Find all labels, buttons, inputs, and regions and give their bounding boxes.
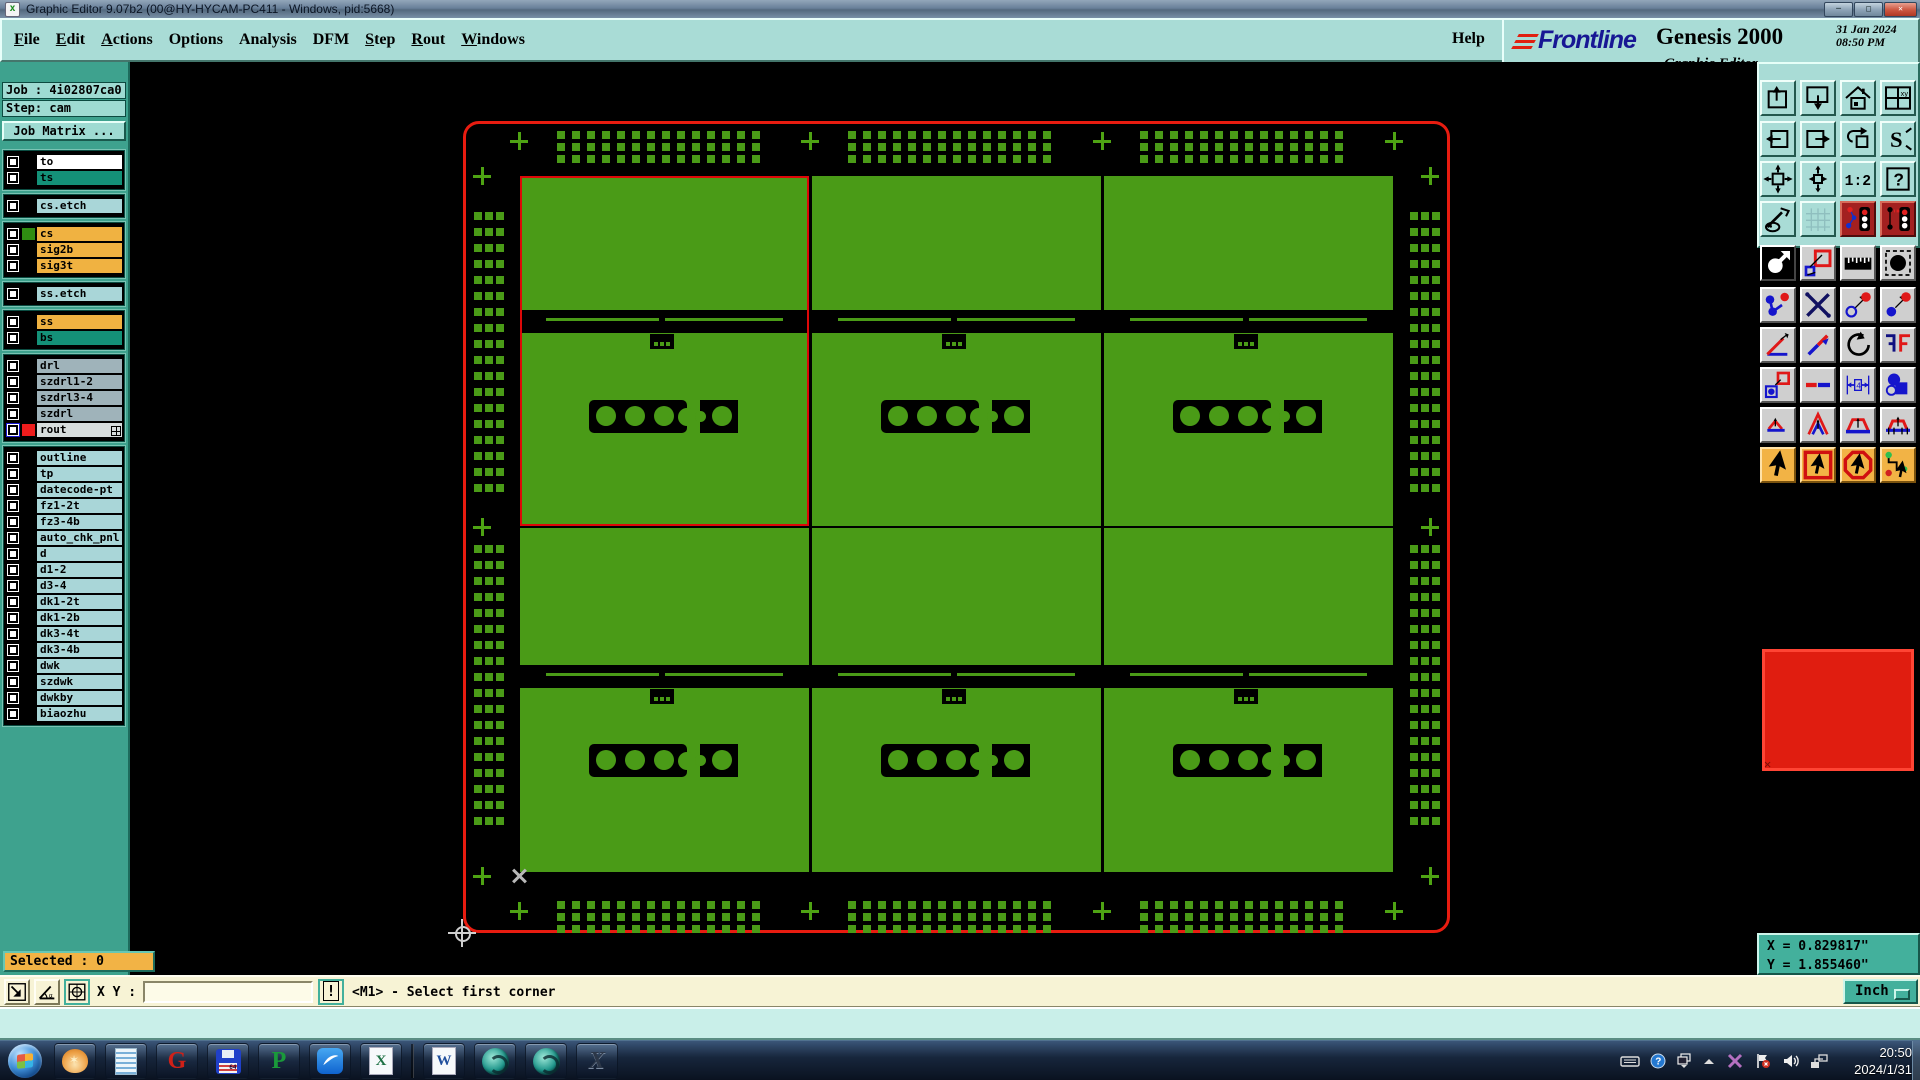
tool-s-step[interactable]: S <box>1880 121 1916 157</box>
fiducial-square <box>1245 925 1253 933</box>
panel-plus-mark <box>1093 902 1111 920</box>
connector-hole <box>1238 750 1258 770</box>
fiducial-square <box>1275 131 1283 139</box>
job-matrix-button[interactable]: Job Matrix ... <box>2 121 126 141</box>
fiducial-square <box>1421 753 1429 761</box>
fiducial-square <box>953 143 961 151</box>
cursor-coordinates: X = 0.829817" Y = 1.855460" <box>1757 933 1920 975</box>
fiducial-square <box>1170 143 1178 151</box>
fiducial-square <box>1421 452 1429 460</box>
tool-reshape[interactable] <box>1800 245 1836 281</box>
taskbar-app-camtek-2[interactable] <box>525 1043 567 1079</box>
grid-snap-icon <box>66 981 88 1003</box>
fiducial-square <box>474 212 482 220</box>
tool-scale-1-2[interactable]: 1:2 <box>1840 161 1876 197</box>
fiducial-square <box>1432 404 1440 412</box>
taskbar-app-excel[interactable]: X <box>360 1043 402 1079</box>
layer-checkbox[interactable] <box>6 659 20 673</box>
cursor-circle <box>455 926 471 942</box>
layer-checkbox[interactable] <box>6 259 20 273</box>
layer-checkbox[interactable] <box>6 451 20 465</box>
layer-checkbox[interactable] <box>6 643 20 657</box>
layer-checkbox[interactable] <box>6 423 20 437</box>
tool-screen-down[interactable] <box>1800 80 1836 116</box>
fiducial-square <box>496 468 504 476</box>
layer-row[interactable]: dwkby <box>5 691 123 705</box>
fiducial-square <box>1421 324 1429 332</box>
prompt-alert-button[interactable]: ! <box>318 979 344 1005</box>
tool-measure-width[interactable]: 4 <box>1840 367 1876 403</box>
menu-step[interactable]: Step <box>357 31 403 49</box>
fiducial-square <box>1421 657 1429 665</box>
fiducial-square <box>602 913 610 921</box>
fiducial-square <box>1432 577 1440 585</box>
xy-coordinate-input[interactable] <box>143 981 313 1003</box>
peak-low-icon <box>1762 409 1794 441</box>
status-tool-angle-snap[interactable]: α <box>34 979 60 1005</box>
word-icon: W <box>432 1047 456 1075</box>
panel-plus-mark <box>801 902 819 920</box>
fiducial-square <box>572 155 580 163</box>
tool-help-query[interactable]: ? <box>1880 161 1916 197</box>
layer-name: dwk <box>37 659 122 673</box>
menu-edit[interactable]: Edit <box>48 31 93 49</box>
layer-name: ts <box>37 171 122 185</box>
minimap-panel[interactable]: ✕ <box>1758 645 1918 775</box>
fiducial-square <box>1155 155 1163 163</box>
mouse-cursor-crosshair <box>448 919 476 947</box>
layer-row[interactable]: datecode-pt <box>5 483 123 497</box>
select-cursor-icon <box>1762 449 1794 481</box>
fiducial-square <box>557 913 565 921</box>
layer-row[interactable]: cs.etch <box>5 199 123 213</box>
tool-peak-marked[interactable] <box>1880 407 1916 443</box>
layer-row[interactable]: ts <box>5 171 123 185</box>
layer-row[interactable]: dwk <box>5 659 123 673</box>
layer-color-swatch <box>22 376 35 388</box>
layer-checkbox[interactable] <box>6 375 20 389</box>
fiducial-square <box>1290 925 1298 933</box>
fiducial-square <box>572 901 580 909</box>
taskbar-app-floppy[interactable] <box>207 1043 249 1079</box>
fiducial-square <box>1410 404 1418 412</box>
tool-setup-tools[interactable] <box>1760 201 1796 237</box>
panel-plus-mark <box>473 518 491 536</box>
layer-checkbox[interactable] <box>6 675 20 689</box>
layer-row[interactable]: biaozhu <box>5 707 123 721</box>
tray-restore-icon[interactable] <box>1676 1053 1692 1069</box>
fiducial-square <box>1013 913 1021 921</box>
layer-row[interactable]: auto_chk_pnl <box>5 531 123 545</box>
fiducial-square <box>1432 212 1440 220</box>
fiducial-square <box>485 340 493 348</box>
fiducial-square <box>496 228 504 236</box>
show-desktop-button[interactable] <box>1912 1041 1920 1080</box>
units-dropdown[interactable]: Inch <box>1843 979 1918 1004</box>
fiducial-square <box>707 913 715 921</box>
taskbar: GPXWX ? 20:50 2024/1/31 <box>0 1040 1920 1080</box>
layer-row[interactable]: dk3-4b <box>5 643 123 657</box>
fiducial-square <box>1335 155 1343 163</box>
fiducial-square <box>496 324 504 332</box>
fiducial-square <box>1421 228 1429 236</box>
taskbar-app-word[interactable]: W <box>423 1043 465 1079</box>
tool-undo-view[interactable] <box>1840 121 1876 157</box>
tool-peak-high[interactable] <box>1800 407 1836 443</box>
tool-pad-dashed[interactable] <box>1880 245 1916 281</box>
layer-row[interactable]: d <box>5 547 123 561</box>
layer-row[interactable]: bs <box>5 331 123 345</box>
layer-group: tots <box>3 150 125 190</box>
layer-row[interactable]: rout <box>5 423 123 437</box>
tray-volume-icon[interactable] <box>1782 1053 1800 1069</box>
fiducial-square <box>938 155 946 163</box>
layer-row[interactable]: to <box>5 155 123 169</box>
tool-angle-measure[interactable] <box>1760 327 1796 363</box>
bluebird-icon <box>317 1048 343 1074</box>
connector-notch <box>1262 752 1280 770</box>
layer-name: drl <box>37 359 122 373</box>
tool-stoplight-a[interactable] <box>1840 201 1876 237</box>
tool-fit-view[interactable] <box>1760 161 1796 197</box>
menu-actions[interactable]: Actions <box>93 31 161 49</box>
fiducial-square <box>1013 143 1021 151</box>
tool-nets[interactable] <box>1760 287 1796 323</box>
fiducial-square <box>474 404 482 412</box>
layer-checkbox[interactable] <box>6 199 20 213</box>
fiducial-square <box>474 609 482 617</box>
tool-grid-toggle[interactable] <box>1800 201 1836 237</box>
fiducial-square <box>1230 925 1238 933</box>
fiducial-square <box>496 372 504 380</box>
pan-view-icon <box>1802 163 1834 195</box>
tool-open-pad-move[interactable] <box>1840 287 1876 323</box>
tool-import-board[interactable] <box>1760 80 1796 116</box>
connector-notch <box>970 408 988 426</box>
tool-zoom-area[interactable] <box>1760 245 1796 281</box>
left-panel: Job : 4i02807ca0 Step: cam Job Matrix ..… <box>0 62 130 1007</box>
fiducial-square <box>1185 131 1193 139</box>
status-tool-resize-box[interactable] <box>4 979 30 1005</box>
svg-text:1:2: 1:2 <box>1845 174 1871 190</box>
fiducial-square <box>1410 689 1418 697</box>
fiducial-square <box>1043 901 1051 909</box>
scale-1-2-icon: 1:2 <box>1842 163 1874 195</box>
panel-plus-mark <box>510 132 528 150</box>
layer-checkbox[interactable] <box>6 359 20 373</box>
fiducial-square <box>1432 785 1440 793</box>
layer-row[interactable]: szdrl1-2 <box>5 375 123 389</box>
fiducial-square <box>557 155 565 163</box>
layer-row[interactable]: szdrl3-4 <box>5 391 123 405</box>
layer-checkbox[interactable] <box>6 579 20 593</box>
fiducial-square <box>1185 913 1193 921</box>
fiducial-square <box>496 308 504 316</box>
layer-row[interactable]: fz1-2t <box>5 499 123 513</box>
angle-snap-icon: α <box>36 981 58 1003</box>
checkbox-icon <box>7 564 19 576</box>
tool-line-slash[interactable] <box>1800 327 1836 363</box>
layer-row[interactable]: d3-4 <box>5 579 123 593</box>
shape-boolean-icon <box>1882 369 1914 401</box>
layer-name: d <box>37 547 122 561</box>
tool-peak-flat[interactable] <box>1840 407 1876 443</box>
layer-row[interactable]: sig3t <box>5 259 123 273</box>
tool-rotate-cw[interactable] <box>1840 327 1876 363</box>
layer-group: ss.etch <box>3 282 125 306</box>
fiducial-square <box>496 657 504 665</box>
layer-color-swatch <box>22 596 35 608</box>
s-step-icon: S <box>1882 123 1914 155</box>
fiducial-square <box>1432 801 1440 809</box>
layer-row[interactable]: cs <box>5 227 123 241</box>
fiducial-square <box>496 404 504 412</box>
fiducial-square <box>1200 155 1208 163</box>
layer-color-swatch <box>22 172 35 184</box>
fiducial-square <box>752 925 760 933</box>
fiducial-square <box>1410 577 1418 585</box>
fiducial-square <box>1432 721 1440 729</box>
layer-checkbox[interactable] <box>6 611 20 625</box>
layer-checkbox[interactable] <box>6 171 20 185</box>
layer-row[interactable]: fz3-4b <box>5 515 123 529</box>
close-button[interactable]: ✕ <box>1884 2 1917 17</box>
tool-select-cursor[interactable] <box>1760 447 1796 483</box>
tool-stoplight-b[interactable] <box>1880 201 1916 237</box>
tool-filled-pad-move[interactable] <box>1880 287 1916 323</box>
tray-flag-icon[interactable] <box>1754 1052 1772 1070</box>
taskbar-app-shell[interactable] <box>54 1043 96 1079</box>
fiducial-square <box>998 131 1006 139</box>
fiducial-square <box>1275 901 1283 909</box>
menu-dfm[interactable]: DFM <box>305 31 357 49</box>
taskbar-separator <box>411 1044 414 1078</box>
layer-row[interactable]: dk1-2t <box>5 595 123 609</box>
fiducial-square <box>587 155 595 163</box>
connector-notch <box>1279 755 1290 766</box>
layer-group: cssig2bsig3t <box>3 222 125 278</box>
fiducial-square <box>1410 753 1418 761</box>
fiducial-square <box>1155 131 1163 139</box>
layer-checkbox[interactable] <box>6 243 20 257</box>
layer-checkbox[interactable] <box>6 331 20 345</box>
layer-color-swatch <box>22 452 35 464</box>
taskbar-clock[interactable]: 20:50 2024/1/31 <box>1832 1044 1912 1078</box>
menu-help[interactable]: Help <box>1452 30 1485 48</box>
tool-peak-low[interactable] <box>1760 407 1796 443</box>
tool-pad-copy[interactable] <box>1760 367 1796 403</box>
fiducial-square <box>485 785 493 793</box>
layer-checkbox[interactable] <box>6 483 20 497</box>
layer-row[interactable]: dk3-4t <box>5 627 123 641</box>
layer-checkbox[interactable] <box>6 155 20 169</box>
layer-checkbox[interactable] <box>6 547 20 561</box>
fiducial-square <box>485 801 493 809</box>
fiducial-square <box>617 143 625 151</box>
menu-windows[interactable]: Windows <box>453 31 533 49</box>
fiducial-square <box>662 155 670 163</box>
pad-dashed-icon <box>1882 247 1914 279</box>
layer-checkbox[interactable] <box>6 407 20 421</box>
menu-rout[interactable]: Rout <box>403 31 453 49</box>
fiducial-square <box>1410 641 1418 649</box>
fiducial-square <box>496 721 504 729</box>
fiducial-square <box>496 276 504 284</box>
fiducial-square <box>485 276 493 284</box>
tool-pan-view[interactable] <box>1800 161 1836 197</box>
fiducial-square <box>1155 925 1163 933</box>
fiducial-square <box>602 155 610 163</box>
layer-row[interactable]: d1-2 <box>5 563 123 577</box>
layer-color-swatch <box>22 228 35 240</box>
tool-exit-right[interactable] <box>1800 121 1836 157</box>
layer-checkbox[interactable] <box>6 627 20 641</box>
fiducial-square <box>1028 925 1036 933</box>
tool-stretch-dash[interactable] <box>1800 367 1836 403</box>
fiducial-square <box>617 131 625 139</box>
connector-notch <box>987 755 998 766</box>
menu-file[interactable]: File <box>6 31 48 49</box>
taskbar-app-notepad[interactable] <box>105 1043 147 1079</box>
tool-mirror-f[interactable] <box>1880 327 1916 363</box>
minimize-button[interactable]: ─ <box>1824 2 1853 17</box>
layer-row[interactable]: ss.etch <box>5 287 123 301</box>
layer-row[interactable]: dk1-2b <box>5 611 123 625</box>
maximize-button[interactable]: □ <box>1854 2 1883 17</box>
connector-hole <box>1209 406 1229 426</box>
tray-xsplit-icon[interactable] <box>1726 1052 1744 1070</box>
fiducial-square <box>1432 244 1440 252</box>
checkbox-icon <box>7 468 19 480</box>
layer-name: fz3-4b <box>37 515 122 529</box>
tray-caret-up-icon[interactable] <box>1702 1055 1716 1067</box>
fiducial-square <box>1290 901 1298 909</box>
layer-checkbox[interactable] <box>6 499 20 513</box>
checkbox-icon <box>7 532 19 544</box>
fiducial-square <box>557 925 565 933</box>
breakoff-tab <box>1234 334 1258 349</box>
fiducial-square <box>848 913 856 921</box>
start-button[interactable] <box>8 1044 42 1078</box>
layer-color-swatch <box>22 260 35 272</box>
menu-analysis[interactable]: Analysis <box>231 31 305 49</box>
tool-select-frame[interactable] <box>1800 447 1836 483</box>
tool-select-net[interactable] <box>1880 447 1916 483</box>
tool-window-xy[interactable]: xy <box>1880 80 1916 116</box>
fiducial-square <box>1185 901 1193 909</box>
layer-checkbox[interactable] <box>6 691 20 705</box>
teal-app-icon <box>533 1048 560 1075</box>
pcb-canvas[interactable] <box>130 62 1920 975</box>
menu-options[interactable]: Options <box>161 31 231 49</box>
fiducial-square <box>998 143 1006 151</box>
fiducial-square <box>474 785 482 793</box>
layer-checkbox[interactable] <box>6 227 20 241</box>
layer-checkbox[interactable] <box>6 563 20 577</box>
status-tool-grid-snap[interactable] <box>64 979 90 1005</box>
layer-checkbox[interactable] <box>6 315 20 329</box>
layer-row[interactable]: outline <box>5 451 123 465</box>
layer-row[interactable]: szdwk <box>5 675 123 689</box>
layer-checkbox[interactable] <box>6 595 20 609</box>
tool-select-octagon[interactable] <box>1840 447 1876 483</box>
layer-checkbox[interactable] <box>6 531 20 545</box>
taskbar-app-genesis[interactable]: G <box>156 1043 198 1079</box>
tool-home-view[interactable] <box>1840 80 1876 116</box>
tool-ruler[interactable] <box>1840 245 1876 281</box>
fiducial-square <box>474 308 482 316</box>
layer-row[interactable]: tp <box>5 467 123 481</box>
layer-checkbox[interactable] <box>6 467 20 481</box>
fiducial-square <box>722 901 730 909</box>
tool-exit-left[interactable] <box>1760 121 1796 157</box>
layer-row[interactable]: ss <box>5 315 123 329</box>
tray-network-icon[interactable] <box>1810 1053 1828 1069</box>
fiducial-square <box>496 561 504 569</box>
layer-color-swatch <box>22 564 35 576</box>
taskbar-app-paragon[interactable]: P <box>258 1043 300 1079</box>
fiducial-square <box>1320 131 1328 139</box>
layer-row[interactable]: szdrl <box>5 407 123 421</box>
layer-color-swatch <box>22 612 35 624</box>
brand-time: 08:50 PM <box>1836 36 1897 49</box>
window-titlebar[interactable]: x Graphic Editor 9.07b2 (00@HY-HYCAM-PC4… <box>0 0 1920 19</box>
tray-keyboard-icon[interactable] <box>1620 1053 1640 1069</box>
fiducial-square <box>1421 308 1429 316</box>
fiducial-square <box>485 641 493 649</box>
taskbar-app-xtools[interactable]: X <box>576 1043 618 1079</box>
fiducial-square <box>617 155 625 163</box>
tool-net-delete[interactable] <box>1800 287 1836 323</box>
reshape-icon <box>1802 247 1834 279</box>
layer-row[interactable]: drl <box>5 359 123 373</box>
connector-notch <box>970 752 988 770</box>
tray-help-icon[interactable]: ? <box>1650 1053 1666 1069</box>
fiducial-square <box>474 705 482 713</box>
fiducial-square <box>1421 625 1429 633</box>
layer-row[interactable]: sig2b <box>5 243 123 257</box>
taskbar-apps: GPXWX <box>54 1043 618 1079</box>
fiducial-square <box>1410 324 1418 332</box>
layer-checkbox[interactable] <box>6 707 20 721</box>
fiducial-square <box>1305 155 1313 163</box>
taskbar-app-camtek-1[interactable] <box>474 1043 516 1079</box>
fiducial-square <box>1140 901 1148 909</box>
fiducial-square <box>863 143 871 151</box>
app-icon: x <box>5 2 20 17</box>
layer-checkbox[interactable] <box>6 287 20 301</box>
tab-pixel <box>1244 697 1248 701</box>
breakoff-tab <box>942 334 966 349</box>
fiducial-square <box>1421 769 1429 777</box>
checkbox-icon <box>7 200 19 212</box>
fiducial-square <box>1305 143 1313 151</box>
tool-shape-boolean[interactable] <box>1880 367 1916 403</box>
fiducial-square <box>647 155 655 163</box>
fiducial-square <box>485 436 493 444</box>
fiducial-square <box>474 593 482 601</box>
minimap-view-rect[interactable] <box>1762 649 1914 771</box>
fiducial-square <box>485 705 493 713</box>
layer-checkbox[interactable] <box>6 391 20 405</box>
layer-color-swatch <box>22 644 35 656</box>
fiducial-square <box>1421 340 1429 348</box>
panel-plus-mark <box>1421 167 1439 185</box>
taskbar-app-bluebird[interactable] <box>309 1043 351 1079</box>
fiducial-square <box>485 452 493 460</box>
fiducial-square <box>692 131 700 139</box>
layer-checkbox[interactable] <box>6 515 20 529</box>
